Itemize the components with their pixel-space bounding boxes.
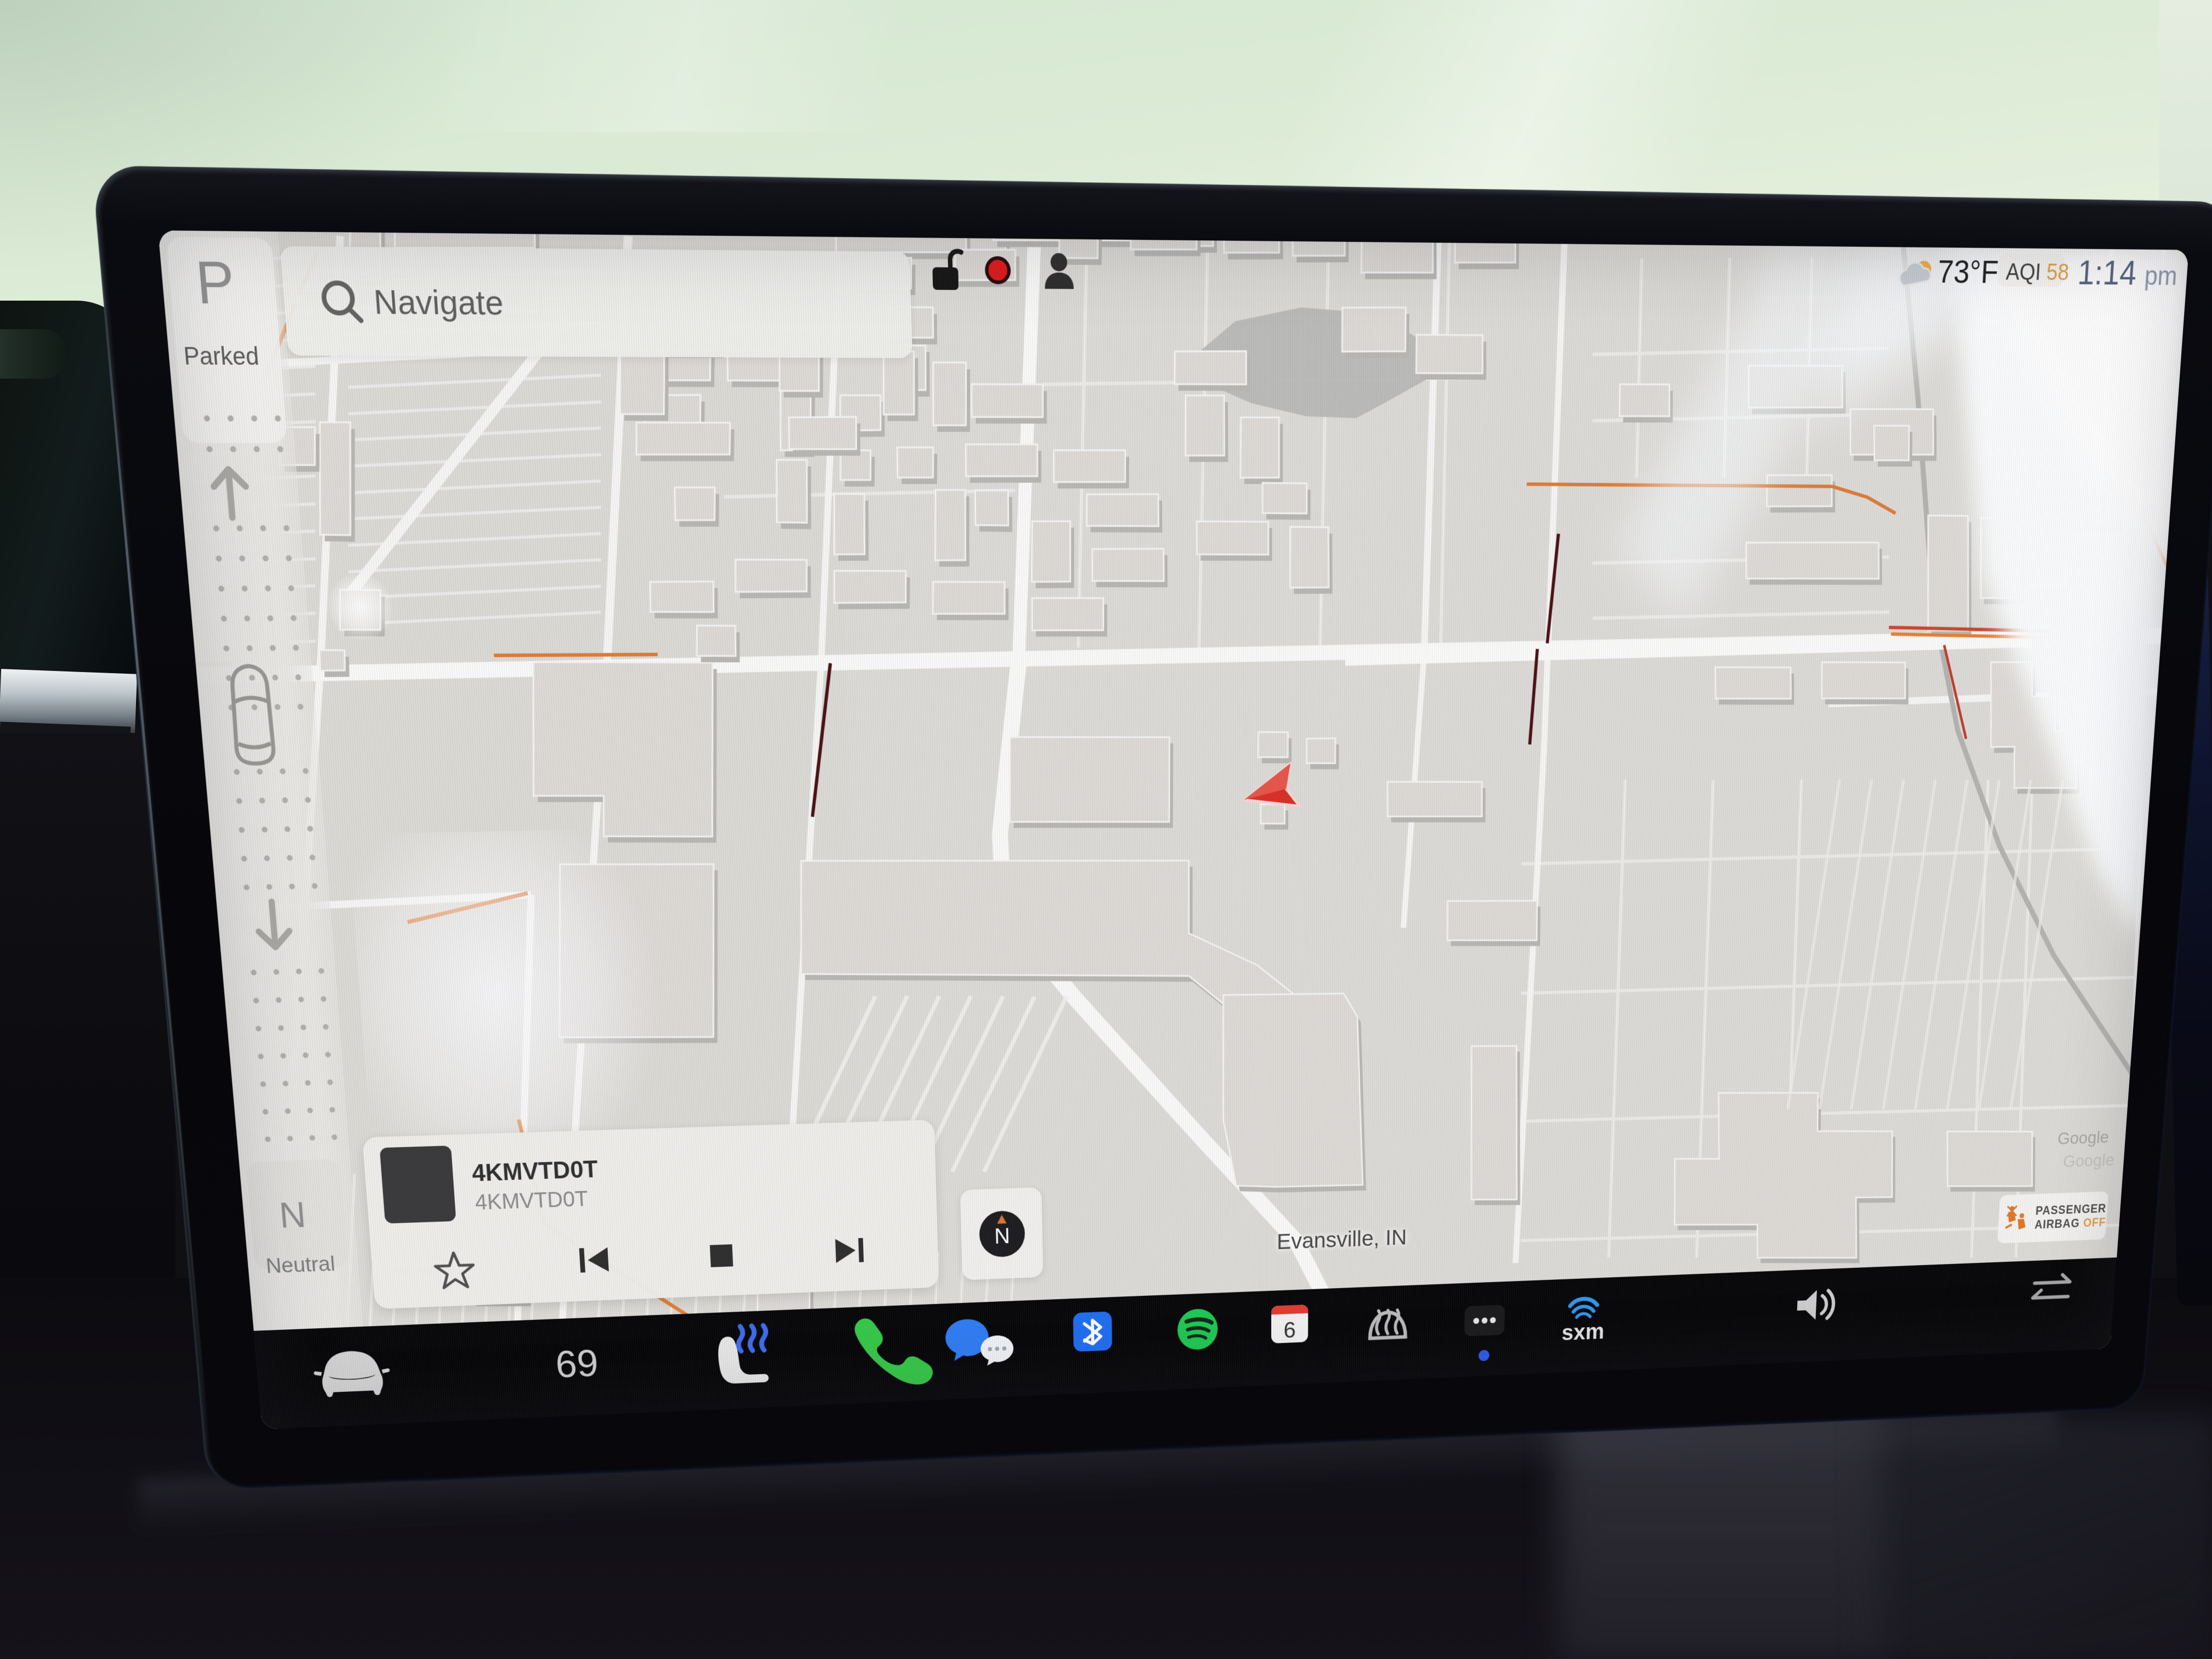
svg-text:N: N xyxy=(994,1224,1011,1249)
svg-text:6: 6 xyxy=(1284,1317,1296,1342)
svg-text:sxm: sxm xyxy=(1561,1319,1605,1345)
svg-text:69: 69 xyxy=(554,1342,599,1385)
